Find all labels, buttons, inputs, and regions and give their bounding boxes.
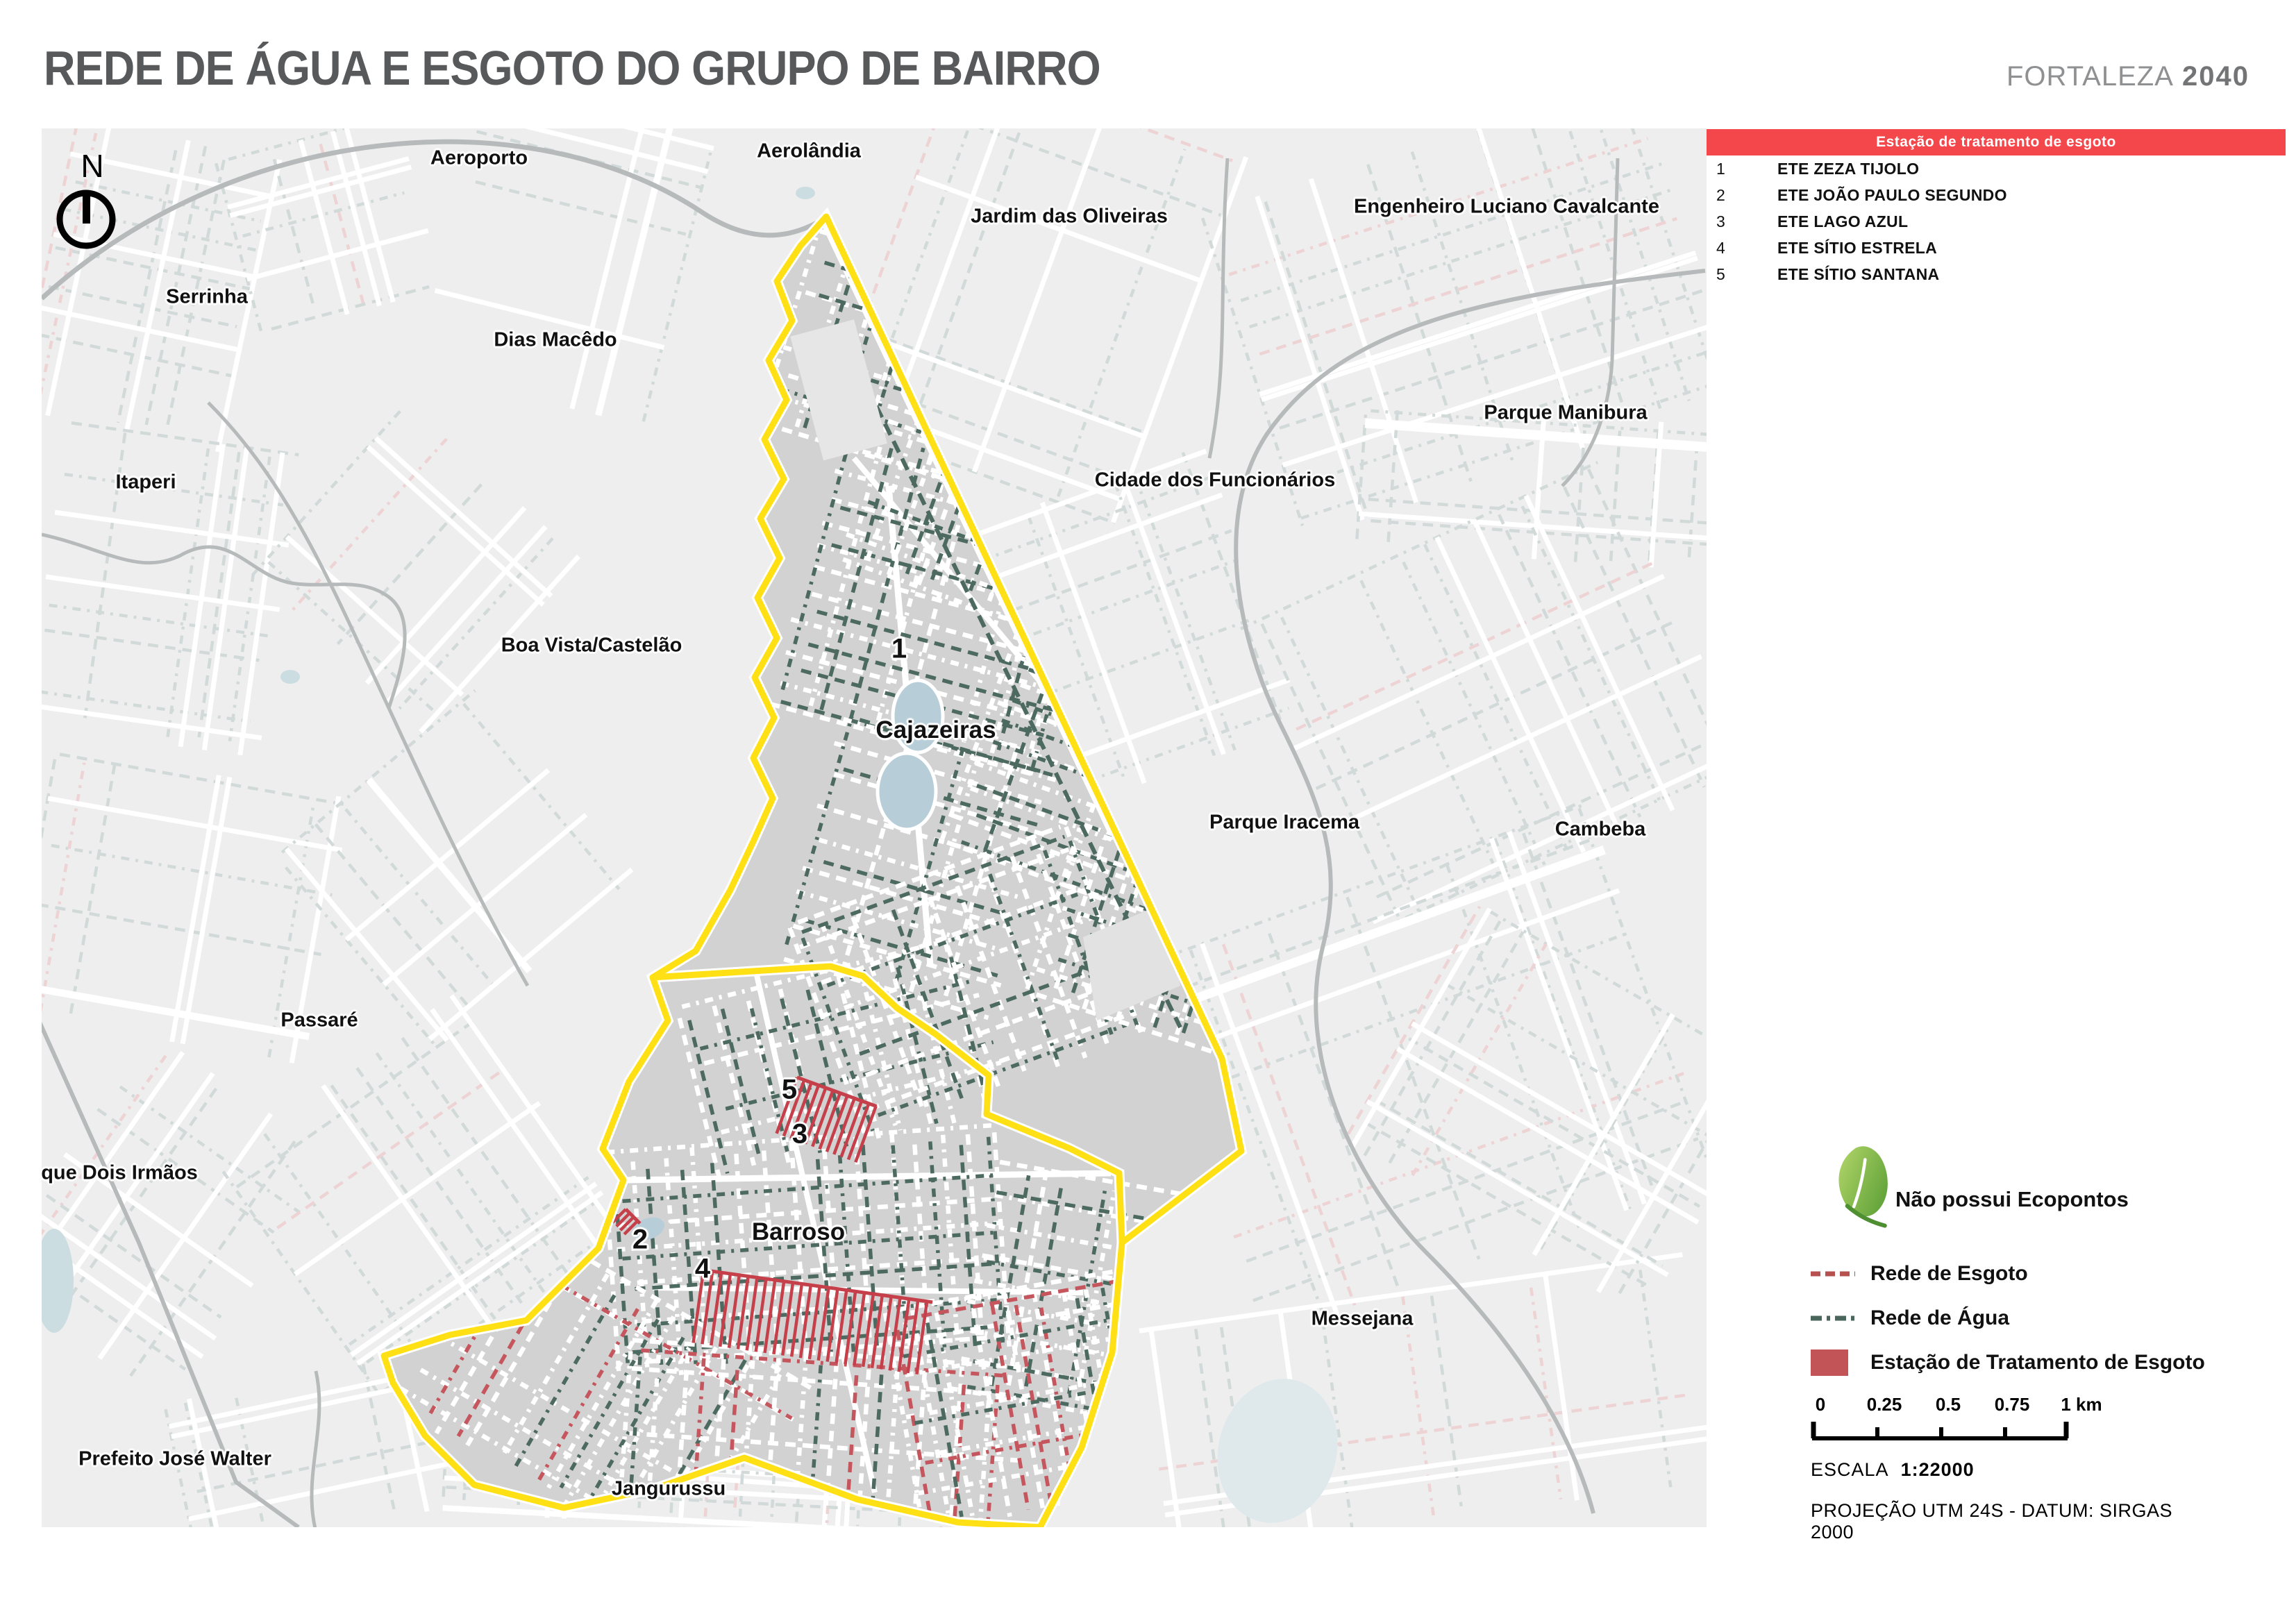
district-label: Parque Manibura: [1484, 402, 1647, 425]
ete-row-number: 3: [1707, 212, 1777, 231]
map-drawing: [42, 128, 1707, 1527]
legend-ete-label: Estação de Tratamento de Esgoto: [1870, 1351, 2205, 1374]
scalebar-tick-label: 0.25: [1867, 1394, 1902, 1415]
ete-legend-row: 5ETE SÍTIO SANTANA: [1707, 261, 2286, 287]
focus-district-label: Cajazeiras: [875, 716, 996, 744]
ete-row-name: ETE JOÃO PAULO SEGUNDO: [1777, 186, 2007, 205]
ete-marker-2: 2: [632, 1225, 648, 1256]
legend-agua-label: Rede de Água: [1870, 1306, 2009, 1330]
district-label: Passaré: [280, 1009, 358, 1032]
ete-marker-1: 1: [891, 634, 907, 665]
scalebar-tick-label: 0: [1816, 1394, 1825, 1415]
district-label: Parque Iracema: [1209, 811, 1359, 834]
ete-row-name: ETE SÍTIO ESTRELA: [1777, 239, 1937, 258]
legend-row-ete: Estação de Tratamento de Esgoto: [1811, 1349, 2205, 1376]
projection-text: PROJEÇÃO UTM 24S - DATUM: SIRGAS 2000: [1811, 1500, 2199, 1543]
agua-dash-icon: [1811, 1315, 1855, 1322]
ete-row-number: 1: [1707, 160, 1777, 178]
ete-legend-rows: 1ETE ZEZA TIJOLO2ETE JOÃO PAULO SEGUNDO3…: [1707, 155, 2286, 287]
district-label: Jangurussu: [612, 1478, 726, 1501]
ete-row-name: ETE LAGO AZUL: [1777, 212, 1908, 231]
page-title: REDE DE ÁGUA E ESGOTO DO GRUPO DE BAIRRO: [44, 40, 1100, 96]
district-label: Engenheiro Luciano Cavalcante: [1354, 196, 1659, 219]
ete-marker-4: 4: [695, 1254, 710, 1285]
ete-square-icon: [1811, 1349, 1848, 1376]
district-label: Dias Macêdo: [494, 329, 617, 352]
scalebar-tick-label: 1 km: [2061, 1394, 2102, 1415]
escala-value: 1:22000: [1901, 1459, 1975, 1480]
map-canvas[interactable]: AeroportoAerolândiaJardim das OliveirasE…: [42, 128, 1707, 1527]
district-label: Cambeba: [1555, 818, 1646, 841]
ete-legend: Estação de tratamento de esgoto 1ETE ZEZ…: [1707, 129, 2286, 287]
district-label: Messejana: [1312, 1308, 1414, 1331]
brand-city: FORTALEZA: [2006, 61, 2174, 92]
focus-district-label: Barroso: [752, 1218, 845, 1246]
district-label: Cidade dos Funcionários: [1095, 469, 1335, 492]
north-compass-icon: N: [54, 147, 131, 258]
ete-marker-3: 3: [792, 1119, 807, 1150]
ete-row-name: ETE SÍTIO SANTANA: [1777, 265, 1939, 284]
scalebar-tick-label: 0.75: [1995, 1394, 2030, 1415]
legend-row-agua: Rede de Água: [1811, 1306, 2009, 1330]
district-label: Aeroporto: [430, 147, 528, 170]
esgoto-dash-icon: [1811, 1270, 1855, 1277]
escala-label: ESCALA: [1811, 1459, 1889, 1480]
scalebar-tick-label: 0.5: [1936, 1394, 1961, 1415]
brand-year: 2040: [2182, 61, 2249, 92]
ete-row-number: 2: [1707, 186, 1777, 205]
ete-row-name: ETE ZEZA TIJOLO: [1777, 160, 1919, 178]
district-label: Aerolândia: [757, 140, 861, 163]
district-label: que Dois Irmãos: [42, 1162, 198, 1185]
ete-legend-row: 4ETE SÍTIO ESTRELA: [1707, 235, 2286, 261]
ete-marker-5: 5: [782, 1075, 797, 1106]
legend-row-esgoto: Rede de Esgoto: [1811, 1262, 2028, 1286]
legend-esgoto-label: Rede de Esgoto: [1870, 1262, 2028, 1286]
district-label: Jardim das Oliveiras: [971, 205, 1168, 228]
scalebar-bar: [1811, 1420, 2088, 1441]
ete-legend-row: 2ETE JOÃO PAULO SEGUNDO: [1707, 182, 2286, 208]
scale-text: ESCALA 1:22000: [1811, 1459, 2199, 1481]
ete-row-number: 5: [1707, 265, 1777, 284]
district-label: Boa Vista/Castelão: [501, 634, 682, 657]
brand-logo: FORTALEZA 2040: [2006, 61, 2249, 92]
ete-legend-row: 3ETE LAGO AZUL: [1707, 208, 2286, 235]
district-label: Serrinha: [166, 286, 248, 309]
compass-n-label: N: [81, 147, 103, 185]
leaf-icon: [1825, 1144, 1894, 1248]
ete-legend-header: Estação de tratamento de esgoto: [1707, 129, 2286, 155]
district-label: Itaperi: [115, 471, 176, 494]
scalebar-tick-labels: 00.250.50.751 km: [1811, 1394, 2199, 1418]
ete-legend-row: 1ETE ZEZA TIJOLO: [1707, 155, 2286, 182]
district-label: Prefeito José Walter: [78, 1448, 271, 1471]
scalebar: 00.250.50.751 km ESCALA 1:22000 PROJEÇÃO…: [1811, 1394, 2199, 1543]
ete-row-number: 4: [1707, 239, 1777, 258]
legend-ecopontos-label: Não possui Ecopontos: [1895, 1187, 2129, 1212]
